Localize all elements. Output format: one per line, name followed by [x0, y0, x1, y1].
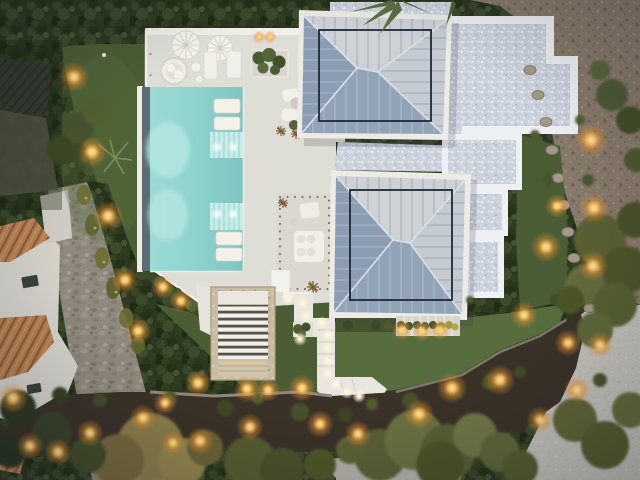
dusk-vignette — [0, 0, 640, 480]
aerial-villa-photo — [0, 0, 640, 480]
scene-canvas — [0, 0, 640, 480]
